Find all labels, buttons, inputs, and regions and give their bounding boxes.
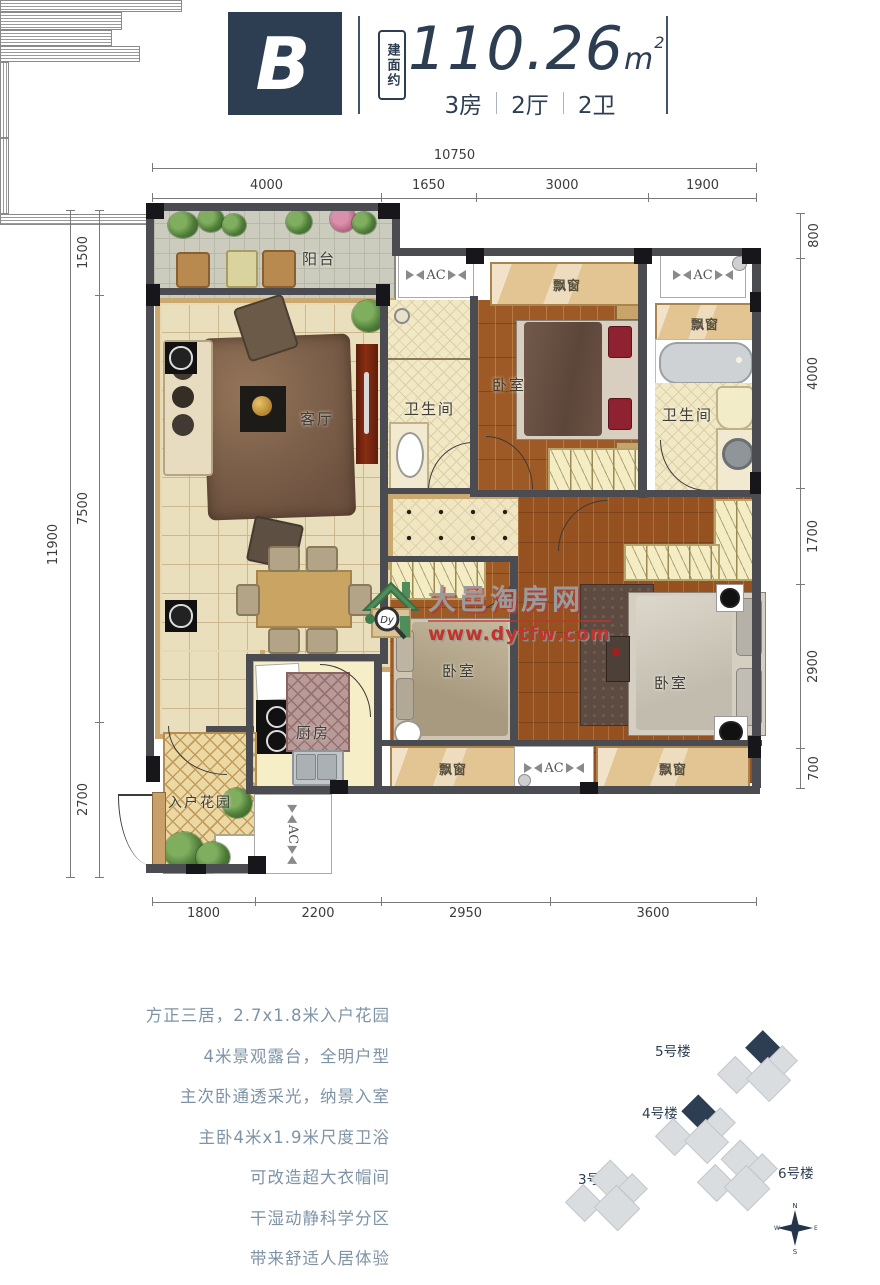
bay-window-1: 飘窗 bbox=[490, 262, 644, 306]
entry-door-arc bbox=[118, 796, 153, 866]
pier bbox=[146, 756, 160, 782]
speaker bbox=[165, 342, 197, 374]
bed3-window-sill bbox=[0, 46, 140, 62]
dim-bottom-1: 1800 bbox=[152, 906, 255, 921]
bay-window-3: 飘窗 bbox=[390, 746, 516, 790]
wall bbox=[248, 654, 384, 661]
bathroom2-label: 卫生间 bbox=[662, 404, 713, 425]
pier bbox=[146, 203, 164, 219]
feature-item: 可改造超大衣帽间 bbox=[78, 1158, 390, 1199]
pier bbox=[750, 292, 761, 312]
dim-bottom-4: 3600 bbox=[550, 906, 756, 921]
bed3-blanket bbox=[636, 596, 732, 730]
plant-icon bbox=[222, 214, 246, 236]
kitchen-label: 厨房 bbox=[296, 722, 330, 743]
watermark-url: www.dytfw.com bbox=[428, 620, 611, 645]
pier bbox=[378, 203, 400, 219]
unit-badge: B bbox=[228, 12, 342, 115]
coffee-table-bowl bbox=[252, 396, 272, 416]
pier bbox=[248, 856, 266, 874]
bed1-pillow bbox=[608, 398, 632, 430]
dim-top-4: 1900 bbox=[648, 178, 757, 193]
dining-chair bbox=[268, 628, 300, 654]
compass-e: E bbox=[814, 1225, 818, 1232]
area-value: 110.26m2 bbox=[408, 14, 665, 84]
dining-chair bbox=[306, 546, 338, 572]
plant-icon bbox=[352, 212, 376, 234]
layout-baths: 2卫 bbox=[578, 86, 616, 120]
dim-top-1: 4000 bbox=[152, 178, 381, 193]
sofa-cushion bbox=[172, 414, 194, 436]
svg-text:Dy: Dy bbox=[380, 615, 395, 626]
entry-garden-label: 入户花园 bbox=[168, 792, 232, 812]
pier bbox=[580, 782, 598, 794]
ac-label: AC bbox=[693, 268, 712, 283]
feature-item: 主次卧通透采光，纳景入室 bbox=[78, 1077, 390, 1118]
door-jamb bbox=[152, 792, 166, 870]
bedroom3-label: 卧室 bbox=[654, 672, 688, 693]
shower-drain bbox=[394, 308, 410, 324]
balcony-table bbox=[226, 250, 258, 288]
wall bbox=[206, 726, 254, 732]
dim-left-3: 2700 bbox=[76, 722, 92, 877]
wall bbox=[248, 786, 384, 794]
burner-icon bbox=[266, 706, 288, 728]
wall bbox=[396, 248, 760, 256]
dining-chair bbox=[268, 546, 300, 572]
bed2-window-sill bbox=[0, 30, 112, 46]
bed1-window bbox=[0, 12, 122, 30]
dim-top-3: 3000 bbox=[476, 178, 648, 193]
dim-bottom-2: 2200 bbox=[255, 906, 381, 921]
compass-w: W bbox=[774, 1225, 780, 1232]
ac-label: AC bbox=[286, 824, 301, 843]
dining-table bbox=[256, 570, 352, 628]
dim-right-4: 2900 bbox=[806, 584, 822, 748]
pier bbox=[748, 736, 761, 758]
siteplan: 5号楼 4号楼 3号楼 6号楼 N S W E bbox=[560, 1000, 880, 1270]
decor-dot bbox=[612, 648, 620, 656]
bay-window-2: 飘窗 bbox=[655, 303, 755, 343]
dim-top-total: 10750 bbox=[152, 148, 757, 163]
compass-s: S bbox=[793, 1248, 798, 1256]
pier bbox=[330, 780, 348, 794]
siteplan-label-6: 6号楼 bbox=[778, 1162, 814, 1182]
header-divider-right bbox=[666, 16, 668, 114]
feature-item: 带来舒适人居体验 bbox=[78, 1239, 390, 1280]
pier bbox=[742, 248, 761, 264]
bath1-basin bbox=[396, 432, 424, 478]
bay-window-4: 飘窗 bbox=[596, 746, 750, 790]
bed1-blanket bbox=[524, 322, 602, 436]
layout-separator bbox=[563, 92, 564, 114]
header-divider-left bbox=[358, 16, 360, 114]
bed1-pillow bbox=[608, 326, 632, 358]
nightstand bbox=[616, 304, 640, 320]
bedroom1-label: 卧室 bbox=[492, 374, 526, 395]
wall bbox=[152, 288, 388, 295]
feature-item: 4米景观露台，全明户型 bbox=[78, 1037, 390, 1078]
living-balcony-window bbox=[0, 0, 182, 12]
balcony-chair bbox=[176, 252, 210, 288]
wall bbox=[374, 654, 382, 788]
wall bbox=[638, 252, 647, 498]
dim-right-5: 700 bbox=[806, 748, 822, 788]
sofa-cushion bbox=[172, 386, 194, 408]
tv-screen bbox=[364, 372, 369, 434]
layout-halls: 2厅 bbox=[511, 86, 549, 120]
dim-left-1: 1500 bbox=[76, 210, 92, 295]
dim-left-total: 11900 bbox=[46, 210, 62, 878]
wall bbox=[246, 654, 253, 794]
ac-platform: AC bbox=[398, 252, 474, 298]
floorplan-page: B 建面约 110.26m2 3房 2厅 2卫 10750 4000 1650 … bbox=[0, 0, 880, 1285]
living-label: 客厅 bbox=[300, 408, 334, 429]
pier bbox=[750, 472, 761, 494]
side-window bbox=[0, 62, 9, 138]
pier bbox=[186, 864, 206, 874]
bed3-wardrobe bbox=[624, 544, 720, 581]
ac-label: AC bbox=[544, 761, 563, 776]
speaker bbox=[165, 600, 197, 632]
wall bbox=[470, 490, 760, 497]
sink-basin bbox=[317, 754, 337, 780]
wall bbox=[382, 786, 760, 794]
layout-separator bbox=[496, 92, 497, 114]
feature-list: 方正三居，2.7x1.8米入户花园 4米景观露台，全明户型 主次卧通透采光，纳景… bbox=[78, 996, 390, 1280]
speaker bbox=[716, 584, 744, 612]
toilet bbox=[716, 386, 754, 430]
pier bbox=[466, 248, 484, 264]
shower-glass bbox=[388, 358, 474, 360]
balcony-label: 阳台 bbox=[302, 248, 336, 269]
watermark: Dy 大邑淘房网 www.dytfw.com bbox=[362, 578, 611, 645]
plant-icon bbox=[198, 208, 224, 232]
wall bbox=[382, 740, 762, 746]
dim-right-2: 4000 bbox=[806, 258, 822, 488]
bedroom2-label: 卧室 bbox=[442, 660, 476, 681]
bathroom1-label: 卫生间 bbox=[404, 398, 455, 419]
area-unit: m bbox=[624, 42, 654, 77]
wall bbox=[752, 248, 761, 788]
ac-label: AC bbox=[426, 268, 445, 283]
dim-top-2: 1650 bbox=[381, 178, 476, 193]
dim-right-1: 800 bbox=[806, 213, 822, 258]
siteplan-label-5: 5号楼 bbox=[655, 1040, 691, 1060]
burner-icon bbox=[266, 730, 288, 752]
dim-left-2: 7500 bbox=[76, 295, 92, 722]
compass: N S W E bbox=[772, 1200, 818, 1256]
dining-chair bbox=[306, 628, 338, 654]
watermark-logo-icon: Dy bbox=[362, 578, 420, 642]
plant-icon bbox=[168, 212, 198, 238]
compass-n: N bbox=[792, 1202, 797, 1210]
watermark-site-name: 大邑淘房网 bbox=[428, 578, 611, 618]
bed2-pillow bbox=[396, 678, 414, 720]
wall bbox=[382, 556, 518, 562]
pier bbox=[376, 284, 390, 306]
dining-chair bbox=[236, 584, 260, 616]
feature-item: 干湿动静科学分区 bbox=[78, 1199, 390, 1240]
pier bbox=[146, 284, 160, 306]
bed1-wardrobe bbox=[548, 448, 644, 496]
layout-summary: 3房 2厅 2卫 bbox=[402, 86, 658, 120]
wall bbox=[382, 488, 474, 494]
dim-line bbox=[152, 168, 757, 169]
pier bbox=[634, 248, 652, 264]
layout-rooms: 3房 bbox=[445, 86, 483, 120]
feature-item: 主卧4米x1.9米尺度卫浴 bbox=[78, 1118, 390, 1159]
bathtub bbox=[659, 342, 753, 384]
balcony-chair bbox=[262, 250, 296, 288]
side-window bbox=[0, 138, 9, 214]
area-exponent: 2 bbox=[654, 33, 665, 52]
wall bbox=[470, 296, 478, 494]
sink-basin bbox=[296, 754, 316, 780]
bath2-basin bbox=[722, 438, 754, 470]
unit-letter: B bbox=[256, 22, 311, 106]
wall bbox=[146, 203, 398, 211]
tub-drain bbox=[736, 357, 742, 363]
dim-bottom-3: 2950 bbox=[381, 906, 550, 921]
dim-right-3: 1700 bbox=[806, 488, 822, 584]
feature-item: 方正三居，2.7x1.8米入户花园 bbox=[78, 996, 390, 1037]
plant-icon bbox=[286, 210, 312, 234]
